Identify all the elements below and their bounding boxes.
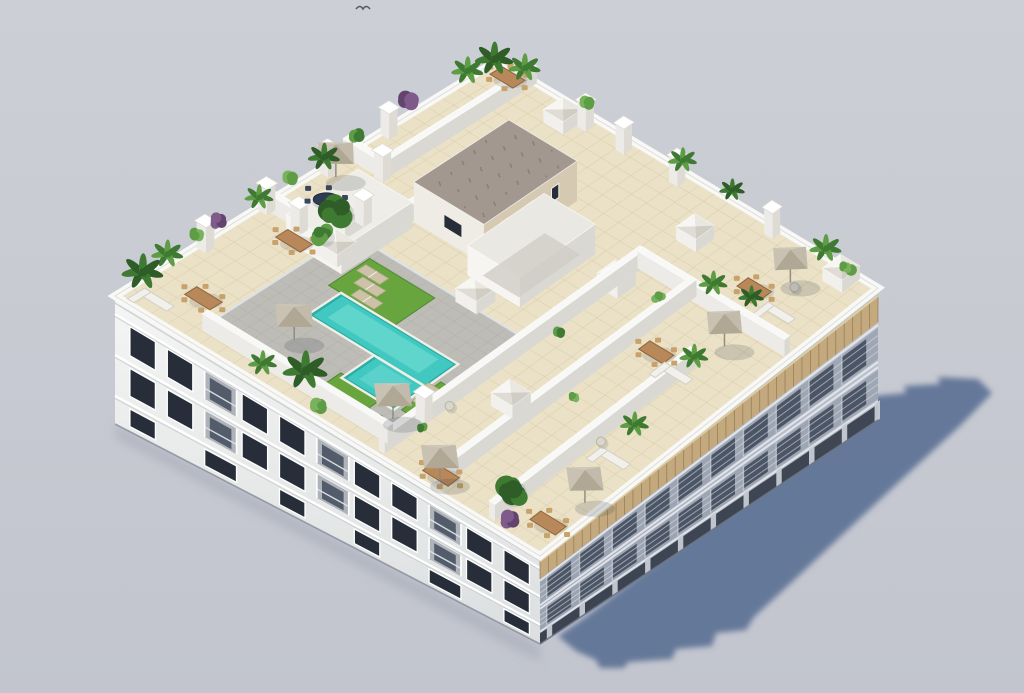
chimney-pillar [762, 200, 782, 239]
chimney-pillar [372, 144, 394, 183]
render-canvas [0, 0, 1024, 693]
chimney-pillar [613, 116, 634, 155]
render-viewport [0, 0, 1024, 693]
chimney-pillar [353, 188, 375, 227]
chimney-pillar [378, 101, 400, 140]
chimney-pillar [413, 385, 435, 425]
